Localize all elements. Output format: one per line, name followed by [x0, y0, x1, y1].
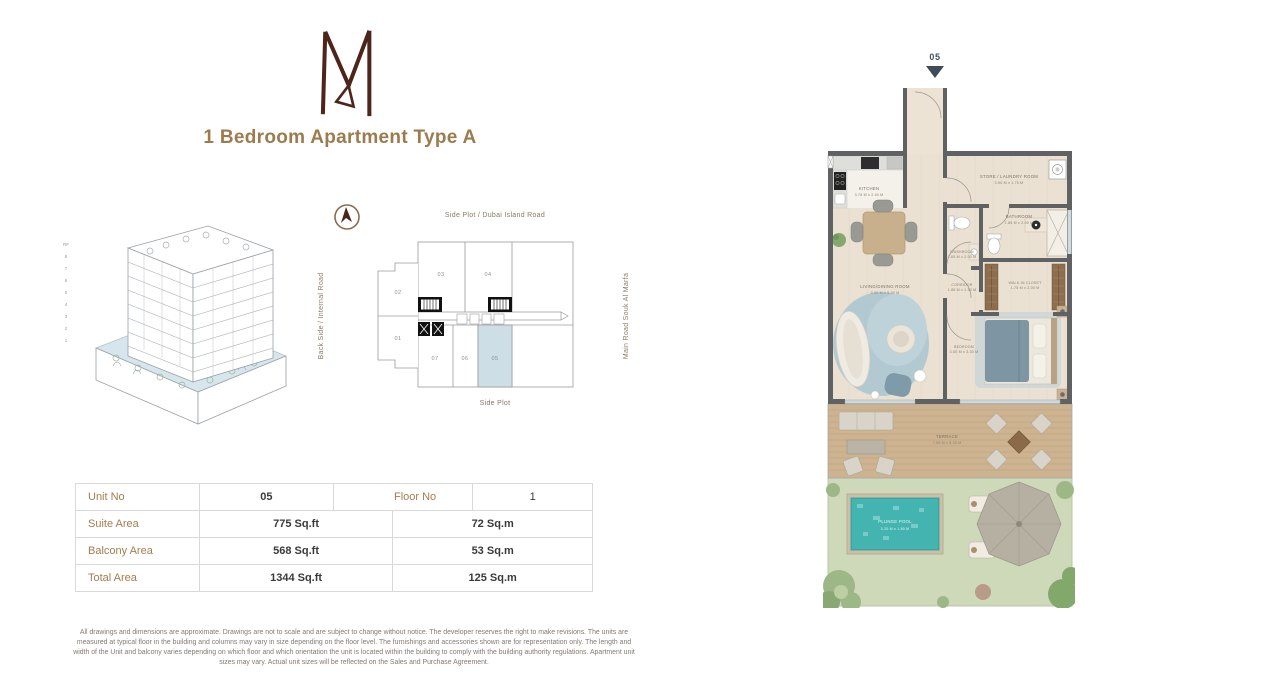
- fridge: [887, 157, 902, 169]
- total-area-sqft: 1344 Sq.ft: [200, 565, 394, 591]
- room-label-bedroom: BEDROOM: [954, 345, 974, 349]
- room-label-pool: PLUNGE POOL: [878, 519, 912, 524]
- road-label-right: Main Road Souk Al Marfa: [623, 246, 633, 386]
- floor-label: 6: [65, 278, 68, 283]
- room-dims-kitchen: 3.78 M x 2.40 M: [855, 193, 884, 197]
- room-dims-bedroom: 3.50 M x 3.30 M: [950, 350, 979, 354]
- floor-label: 5: [65, 290, 68, 295]
- toilet: [949, 216, 954, 230]
- kitchen-fixtures: [833, 156, 903, 208]
- coffee-table: [847, 440, 885, 454]
- suite-area-label: Suite Area: [76, 511, 200, 537]
- pillow: [1033, 354, 1046, 378]
- floor-no-label: Floor No: [334, 484, 473, 510]
- table-row: Suite Area 775 Sq.ft 72 Sq.m: [76, 511, 592, 538]
- unit-label-02: 02: [395, 290, 402, 296]
- room-dims-store: 3.90 M x 1.75 M: [995, 181, 1024, 185]
- tower: [128, 226, 273, 382]
- total-area-sqm: 125 Sq.m: [393, 565, 592, 591]
- brochure-page: 1 Bedroom Apartment Type A RF 8 7 6 5 4 …: [0, 0, 1275, 684]
- balcony-area-sqft: 568 Sq.ft: [200, 538, 394, 564]
- unit-label-04: 04: [485, 272, 492, 278]
- window: [1068, 210, 1072, 254]
- outdoor-sofa: [839, 412, 893, 430]
- room-dims-closet: 1.75 M x 2.00 M: [1011, 286, 1040, 290]
- unit-marker-label: 05: [929, 52, 940, 62]
- floor-plan: KITCHEN 3.78 M x 2.40 M STORE / LAUNDRY …: [823, 46, 1075, 608]
- unit-no-label: Unit No: [76, 484, 200, 510]
- suite-area-sqft: 775 Sq.ft: [200, 511, 394, 537]
- room-dims-pool: 3.20 M x 1.80 M: [881, 527, 910, 531]
- balcony-area-label: Balcony Area: [76, 538, 200, 564]
- building-floor-labels: RF 8 7 6 5 4 3 2 1: [63, 242, 69, 343]
- bedroom-furniture: [975, 306, 1068, 400]
- entrance-arrow-icon: [926, 66, 944, 78]
- washing-machine: [1049, 160, 1066, 179]
- balcony-area-sqm: 53 Sq.m: [393, 538, 592, 564]
- total-area-label: Total Area: [76, 565, 200, 591]
- table-row: Balcony Area 568 Sq.ft 53 Sq.m: [76, 538, 592, 565]
- floor-label: RF: [63, 242, 69, 247]
- living-plant: [832, 233, 846, 247]
- room-label-kitchen: KITCHEN: [859, 186, 880, 191]
- room-dims-living: 3.90 M x 5.90 M: [871, 291, 900, 295]
- road-label-left: Back Side / Internal Road: [318, 246, 328, 386]
- unit-no-value: 05: [200, 484, 334, 510]
- unit-label-05: 05: [492, 356, 499, 362]
- kitchen-sink: [835, 194, 845, 204]
- road-label-bottom: Side Plot: [395, 400, 595, 407]
- floor-no-value: 1: [473, 484, 592, 510]
- side-table: [914, 370, 926, 382]
- road-label-top: Side Plot / Dubai Island Road: [395, 212, 595, 219]
- room-dims-corridor: 1.85 M x 1.50 M: [948, 288, 977, 292]
- unit-label-01: 01: [395, 336, 402, 342]
- room-dims-washroom: 1.65 M x 2.00 M: [948, 255, 977, 259]
- lounge-chair: [887, 325, 915, 353]
- room-label-store: STORE / LAUNDRY ROOM: [980, 174, 1038, 179]
- unit-label-07: 07: [432, 356, 439, 362]
- room-dims-bathroom: 1.85 M x 2.00 M: [1005, 221, 1034, 225]
- room-label-terrace: TERRACE: [936, 434, 958, 439]
- room-label-washroom: WASHROOM: [950, 250, 973, 254]
- compass-icon: [332, 202, 362, 232]
- floor-label: 3: [65, 314, 68, 319]
- page-title: 1 Bedroom Apartment Type A: [40, 127, 640, 149]
- floor-label: 4: [65, 302, 68, 307]
- floor-label: 2: [65, 326, 68, 331]
- floor-label: 7: [65, 266, 68, 271]
- floor-label: 8: [65, 254, 68, 259]
- umbrella: [977, 482, 1061, 566]
- room-label-corridor: CORRIDOR: [951, 283, 972, 287]
- key-plan: 03 04 02 01 07 06 05: [365, 228, 585, 398]
- side-table: [871, 391, 879, 399]
- building-illustration: RF 8 7 6 5 4 3 2 1: [58, 208, 293, 443]
- pillow: [1033, 324, 1046, 348]
- table-row: Total Area 1344 Sq.ft 125 Sq.m: [76, 565, 592, 591]
- table-row: Unit No 05 Floor No 1: [76, 484, 592, 511]
- unit-label-06: 06: [462, 356, 469, 362]
- unit-marker: 05: [926, 52, 944, 78]
- cooktop: [834, 172, 846, 190]
- room-label-bathroom: BATHROOM: [1006, 214, 1033, 219]
- disclaimer-text: All drawings and dimensions are approxim…: [68, 628, 640, 668]
- room-label-closet: WALK-IN CLOSET: [1008, 281, 1042, 285]
- brand-logo: [314, 26, 372, 118]
- plunge-pool: [847, 494, 943, 554]
- oven: [861, 157, 879, 169]
- room-dims-terrace: 7.95 M x 6.30 M: [933, 441, 962, 445]
- suite-area-sqm: 72 Sq.m: [393, 511, 592, 537]
- floor-label: 1: [65, 338, 68, 343]
- info-table: Unit No 05 Floor No 1 Suite Area 775 Sq.…: [75, 483, 593, 592]
- room-label-living: LIVING/DINING ROOM: [860, 284, 910, 289]
- unit-label-03: 03: [438, 272, 445, 278]
